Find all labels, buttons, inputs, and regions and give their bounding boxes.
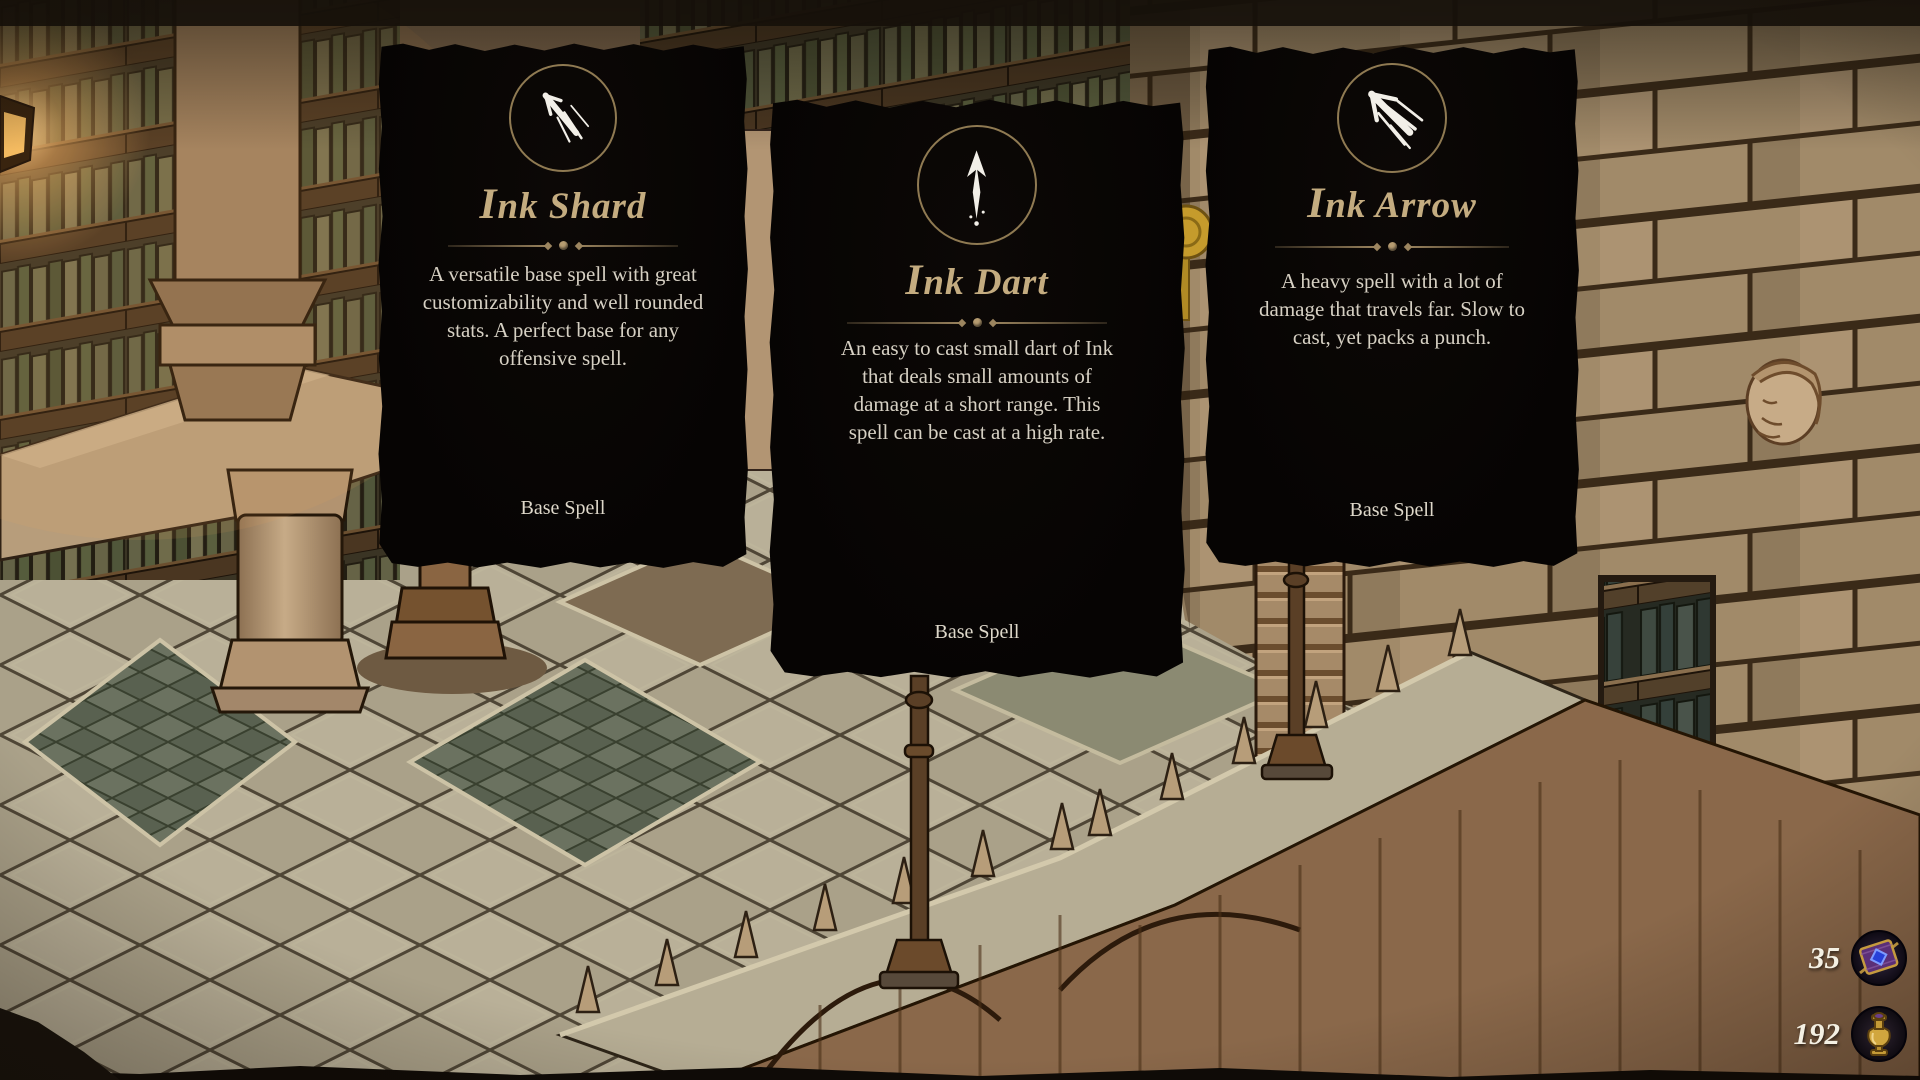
spellbook-count: 35 xyxy=(1768,940,1840,976)
ink-dart-icon xyxy=(929,137,1024,232)
spell-type-label: Base Spell xyxy=(377,497,749,520)
spell-description: A heavy spell with a lot of damage that … xyxy=(1247,267,1537,351)
game-screen: Ink Shard A versatile base spell with gr… xyxy=(0,0,1920,1080)
spell-card-ink-dart[interactable]: Ink Dart An easy to cast small dart of I… xyxy=(768,98,1186,680)
ink-arrow-icon xyxy=(1349,75,1436,162)
spell-title: Ink Arrow xyxy=(1307,183,1477,226)
title-divider xyxy=(1275,242,1508,251)
title-divider xyxy=(847,318,1106,327)
title-divider xyxy=(448,241,679,250)
spell-type-label: Base Spell xyxy=(768,621,1186,644)
spell-title: Ink Dart xyxy=(905,260,1048,303)
ink-vial-icon xyxy=(1850,1005,1908,1063)
spellbook-icon xyxy=(1850,929,1908,987)
spell-icon-ring xyxy=(509,64,617,172)
spell-type-label: Base Spell xyxy=(1204,499,1580,522)
ink-shard-icon xyxy=(520,75,605,160)
spell-card-ink-arrow[interactable]: Ink Arrow A heavy spell with a lot of da… xyxy=(1204,45,1580,569)
spell-icon-ring xyxy=(917,125,1037,245)
counter-spellbooks: 35 xyxy=(1768,929,1908,987)
spell-description: An easy to cast small dart of Ink that d… xyxy=(833,334,1121,446)
counter-ink: 192 xyxy=(1768,1005,1908,1063)
spell-icon-ring xyxy=(1337,63,1447,173)
spell-description: A versatile base spell with great custom… xyxy=(417,260,709,372)
spell-card-ink-shard[interactable]: Ink Shard A versatile base spell with gr… xyxy=(377,42,749,570)
ink-count: 192 xyxy=(1768,1016,1840,1052)
spell-title: Ink Shard xyxy=(480,184,647,227)
